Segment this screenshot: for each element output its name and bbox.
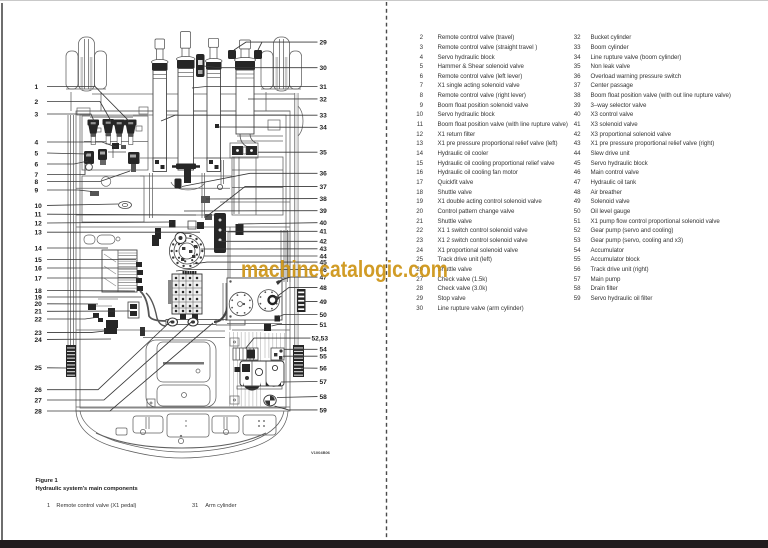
svg-text:32: 32 <box>320 96 328 103</box>
svg-text:8: 8 <box>35 179 39 186</box>
svg-text:58: 58 <box>320 394 328 401</box>
svg-text:55: 55 <box>320 354 328 361</box>
svg-text:15: 15 <box>35 257 43 264</box>
svg-text:4: 4 <box>35 139 39 146</box>
svg-text:38: 38 <box>320 196 328 203</box>
svg-text:7: 7 <box>35 172 39 179</box>
svg-text:10: 10 <box>35 203 43 210</box>
svg-text:16: 16 <box>35 265 43 272</box>
svg-text:machinecatalogic.com: machinecatalogic.com <box>241 258 448 283</box>
svg-text:43: 43 <box>320 246 328 253</box>
svg-text:37: 37 <box>320 184 328 191</box>
svg-text:26: 26 <box>35 387 43 394</box>
svg-text:20: 20 <box>35 301 43 308</box>
svg-text:12: 12 <box>35 220 43 227</box>
svg-text:50: 50 <box>320 312 328 319</box>
svg-text:36: 36 <box>320 171 328 178</box>
svg-text:5: 5 <box>35 150 39 157</box>
svg-text:29: 29 <box>320 40 328 47</box>
svg-text:52,53: 52,53 <box>312 336 329 343</box>
svg-text:49: 49 <box>320 299 328 306</box>
svg-text:42: 42 <box>320 239 328 246</box>
svg-text:9: 9 <box>35 187 39 194</box>
svg-text:1: 1 <box>35 84 39 91</box>
svg-text:17: 17 <box>35 275 43 282</box>
svg-text:51: 51 <box>320 322 328 329</box>
svg-text:25: 25 <box>35 365 43 372</box>
svg-text:11: 11 <box>35 212 42 219</box>
svg-text:39: 39 <box>320 208 328 215</box>
svg-text:V1004B06: V1004B06 <box>311 450 331 455</box>
svg-text:22: 22 <box>35 316 43 323</box>
svg-text:21: 21 <box>35 309 43 316</box>
svg-text:2: 2 <box>35 99 39 106</box>
svg-text:48: 48 <box>320 285 328 292</box>
svg-text:30: 30 <box>320 65 328 72</box>
svg-text:13: 13 <box>35 230 43 237</box>
svg-text:57: 57 <box>320 379 328 386</box>
svg-text:28: 28 <box>35 408 43 415</box>
svg-text:35: 35 <box>320 150 328 157</box>
svg-text:41: 41 <box>320 229 328 236</box>
svg-text:56: 56 <box>320 366 328 373</box>
svg-text:27: 27 <box>35 397 43 404</box>
svg-text:14: 14 <box>35 245 43 252</box>
svg-text:6: 6 <box>35 161 39 168</box>
svg-text:24: 24 <box>35 337 43 344</box>
svg-text:3: 3 <box>35 111 39 118</box>
svg-text:59: 59 <box>320 407 328 414</box>
svg-text:34: 34 <box>320 125 328 132</box>
svg-text:40: 40 <box>320 220 328 227</box>
svg-text:31: 31 <box>320 84 328 91</box>
svg-text:33: 33 <box>320 113 328 120</box>
